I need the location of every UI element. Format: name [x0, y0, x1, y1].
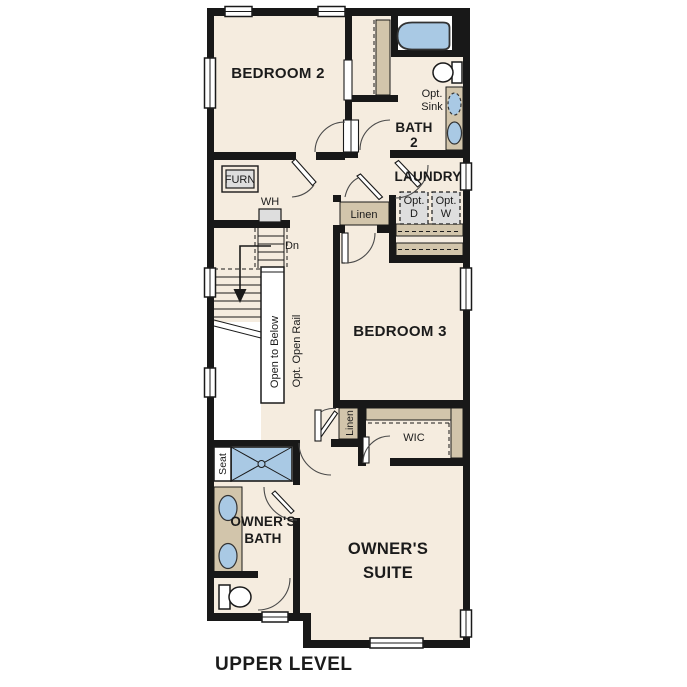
window-top-2 — [318, 7, 345, 17]
owners-sink-2 — [219, 544, 237, 569]
window-left-3 — [205, 368, 216, 397]
floor-plan-drawing: BEDROOM 2 BATH 2 Opt. Sink LAUNDRY Opt. … — [0, 0, 687, 687]
optional-sink — [448, 93, 461, 115]
laundry-label: LAUNDRY — [395, 169, 462, 184]
opt-open-rail-label: Opt. Open Rail — [291, 315, 303, 388]
opt-washer-label-line1: Opt. — [436, 195, 457, 207]
opt-sink-label-line1: Opt. — [422, 88, 443, 100]
wic-label: WIC — [403, 432, 424, 444]
furnace-label: FURN — [225, 174, 256, 186]
bath2-label-line2: 2 — [410, 135, 418, 150]
toilet-bath2 — [433, 62, 462, 83]
floor-plan-upper-level: BEDROOM 2 BATH 2 Opt. Sink LAUNDRY Opt. … — [0, 0, 687, 687]
seat-label: Seat — [217, 453, 229, 475]
window-top-1 — [225, 7, 252, 17]
bedroom2-closet-shelf — [376, 20, 390, 95]
wic-shelf-top — [366, 408, 463, 420]
linen-lower-label: Linen — [344, 410, 356, 436]
bedroom2-closet-door — [344, 60, 352, 100]
window-left-1 — [205, 58, 216, 108]
owners-suite-label-line1: OWNER'S — [348, 540, 428, 558]
window-right-2 — [461, 268, 472, 310]
owners-bath-label-line2: BATH — [244, 531, 281, 546]
window-right-1 — [461, 163, 472, 190]
bath2-sink — [448, 122, 462, 144]
bedroom3-label: BEDROOM 3 — [353, 323, 447, 340]
down-label: Dn — [285, 240, 299, 252]
opt-sink-label-line2: Sink — [421, 101, 443, 113]
window-bottom-2 — [370, 638, 423, 648]
owners-bath-label-line1: OWNER'S — [230, 514, 295, 529]
water-heater-unit — [259, 209, 281, 222]
water-heater-label: WH — [261, 196, 279, 208]
toilet-owners-bath — [219, 585, 251, 609]
window-right-3 — [461, 610, 472, 637]
opt-dryer-label-line1: Opt. — [404, 195, 425, 207]
owners-suite-label-line2: SUITE — [363, 564, 413, 582]
bath2-label-line1: BATH — [395, 120, 432, 135]
open-to-below-label: Open to Below — [269, 316, 281, 388]
level-title: UPPER LEVEL — [215, 654, 352, 675]
open-to-below-void — [214, 322, 261, 441]
opt-dryer-label-line2: D — [410, 208, 418, 220]
linen-upper-label: Linen — [351, 209, 378, 221]
laundry-counter-1 — [396, 224, 463, 236]
window-left-2 — [205, 268, 216, 297]
shower — [231, 447, 292, 481]
opt-washer-label-line2: W — [441, 208, 452, 220]
window-bottom-1 — [262, 612, 288, 622]
bedroom2-label: BEDROOM 2 — [231, 65, 325, 82]
bathtub — [398, 23, 450, 50]
wic-shelf-right — [451, 408, 463, 458]
